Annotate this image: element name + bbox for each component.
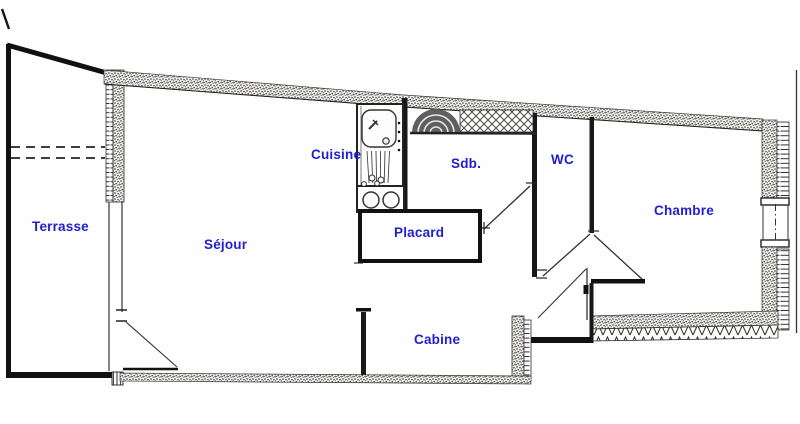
cabine-right-wall-masonry: [512, 316, 524, 377]
cabine-structure: [120, 308, 531, 384]
cooktop-knob-1: [362, 182, 367, 187]
room-label-sdb: Sdb.: [451, 156, 481, 171]
window-head: [761, 198, 789, 205]
room-label-cabine: Cabine: [414, 332, 460, 347]
terrasse-door-swing: [126, 322, 177, 367]
terrasse-bottom-wall: [6, 372, 113, 378]
room-label-terrasse: Terrasse: [32, 219, 89, 234]
chambre-window: [761, 198, 789, 247]
kitchen-unit: [357, 98, 408, 212]
room-label-chambre: Chambre: [654, 203, 714, 218]
room-label-placard: Placard: [394, 225, 444, 240]
chambre-south-wall: [590, 311, 778, 341]
sdb-fixture-edge: [410, 133, 537, 134]
room-label-sejour: Séjour: [204, 237, 247, 252]
cooktop-icon: [357, 186, 404, 212]
room-label-cuisine: Cuisine: [311, 147, 361, 162]
crosshatch-closet: [460, 110, 533, 132]
east-wall-hatch-lower: [777, 249, 789, 330]
window-sill: [761, 240, 789, 247]
chambre-door-leaf-open: [591, 279, 645, 284]
terrasse-left-wall: [6, 44, 11, 378]
sink-drain-knob: [383, 138, 389, 144]
chambre-door-swing: [594, 235, 643, 280]
hall-door-swing: [538, 269, 586, 318]
wc-door-leaf: [543, 234, 590, 276]
chambre-west-lower-wall: [590, 283, 594, 343]
wc-left-wall: [532, 113, 537, 277]
floor-plan: Terrasse Séjour Cuisine Sdb. WC Placard …: [0, 0, 800, 424]
cabine-wall-cap: [356, 308, 371, 312]
south-wall-masonry: [120, 373, 531, 384]
facade-hatch-column: [106, 70, 113, 202]
cabine-right-wall-hatch: [524, 320, 531, 377]
hall-door-hinge: [584, 285, 589, 294]
cooktop-knob-2: [375, 181, 380, 186]
wc-partitions: [532, 113, 594, 278]
kitchen-sink-icon: [362, 110, 396, 147]
wc-right-wall: [590, 117, 595, 233]
boundary-stub-line: [2, 9, 9, 29]
terrasse-structure: [2, 9, 113, 378]
cabine-left-wall: [361, 312, 366, 377]
east-wall: [761, 70, 797, 333]
terrasse-top-wall: [7, 45, 105, 73]
facade-masonry-column: [113, 70, 124, 202]
east-wall-masonry-upper: [762, 120, 777, 198]
sdb-door-leaf: [484, 186, 530, 229]
hall-south-wall: [529, 337, 591, 343]
sink-control-1: [369, 175, 375, 181]
east-wall-hatch-upper: [777, 122, 789, 198]
room-label-wc: WC: [551, 152, 574, 167]
west-facade-wall: [106, 70, 178, 385]
